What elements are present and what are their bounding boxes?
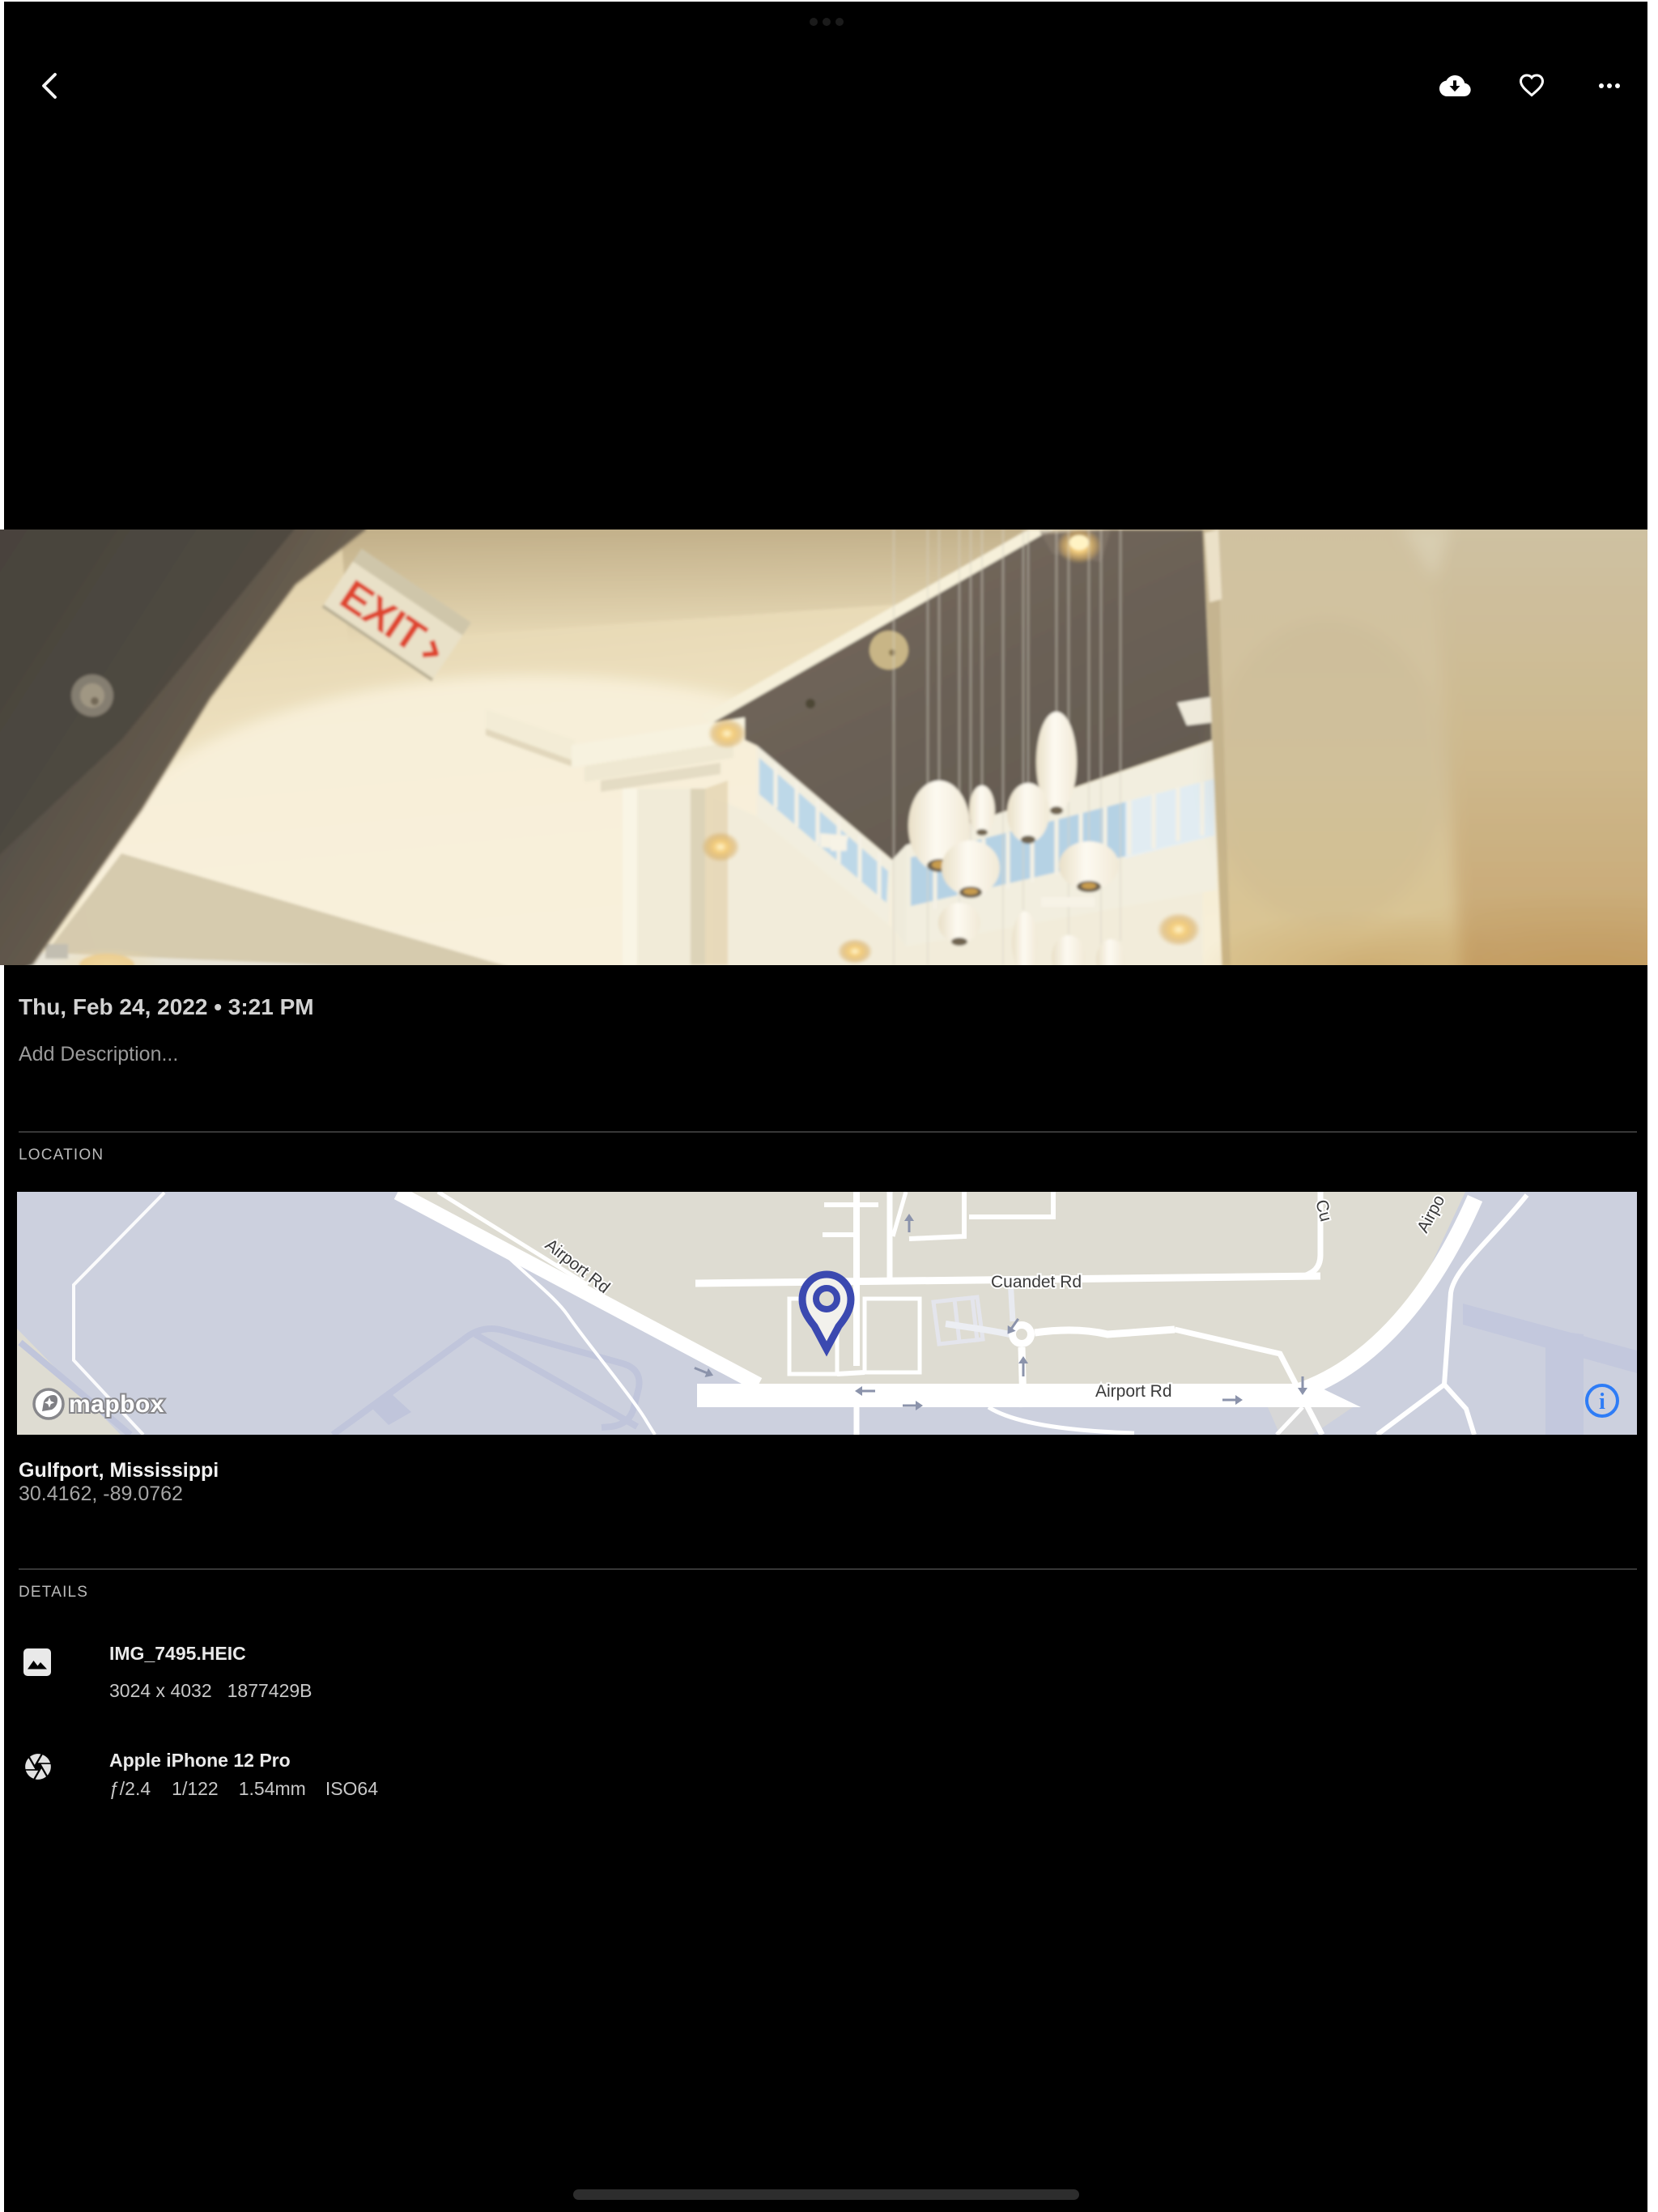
svg-text:Cuandet Rd: Cuandet Rd [991,1273,1082,1291]
svg-text:mapbox: mapbox [69,1391,164,1418]
svg-text:Airport Rd: Airport Rd [1095,1382,1172,1401]
svg-text:i: i [1599,1389,1605,1414]
